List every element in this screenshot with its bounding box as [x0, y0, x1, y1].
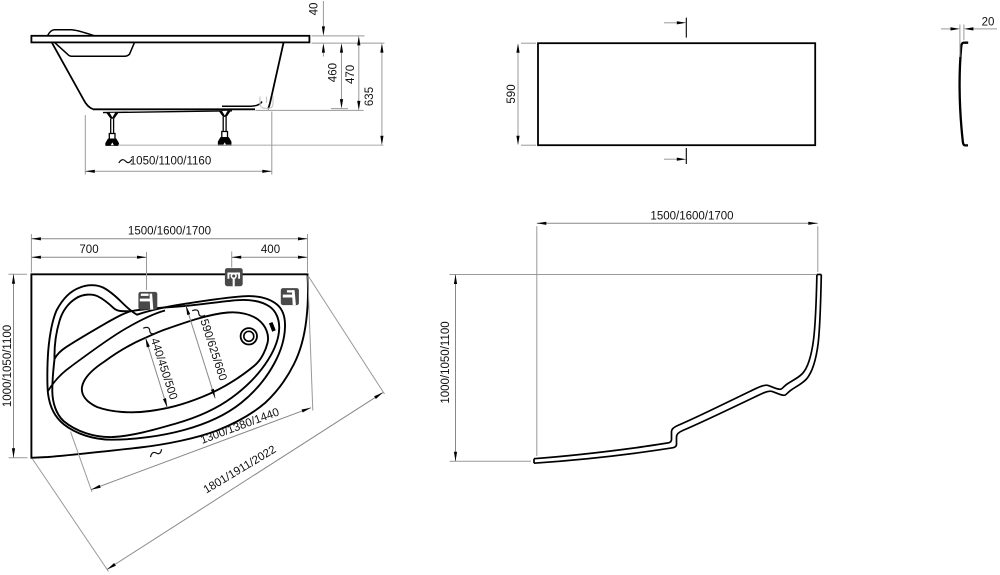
- svg-text:590/625/660: 590/625/660: [197, 318, 228, 383]
- svg-text:460: 460: [328, 63, 340, 82]
- svg-text:1801/1911/2022: 1801/1911/2022: [202, 444, 279, 497]
- svg-text:1050/1100/1160: 1050/1100/1160: [130, 156, 211, 168]
- svg-text:1500/1600/1700: 1500/1600/1700: [650, 210, 733, 222]
- svg-text:635: 635: [364, 87, 376, 106]
- svg-text:700: 700: [79, 244, 98, 256]
- svg-text:590: 590: [506, 84, 518, 103]
- svg-text:1000/1050/1100: 1000/1050/1100: [440, 321, 452, 403]
- svg-text:1000/1050/1100: 1000/1050/1100: [2, 325, 14, 407]
- svg-text:1300/1380/1440: 1300/1380/1440: [199, 406, 281, 446]
- svg-text:400: 400: [261, 244, 280, 256]
- svg-text:470: 470: [345, 65, 357, 84]
- svg-text:20: 20: [982, 17, 995, 29]
- svg-text:440/450/500: 440/450/500: [148, 337, 179, 402]
- svg-text:1500/1600/1700: 1500/1600/1700: [128, 226, 211, 238]
- svg-text:40: 40: [309, 3, 321, 16]
